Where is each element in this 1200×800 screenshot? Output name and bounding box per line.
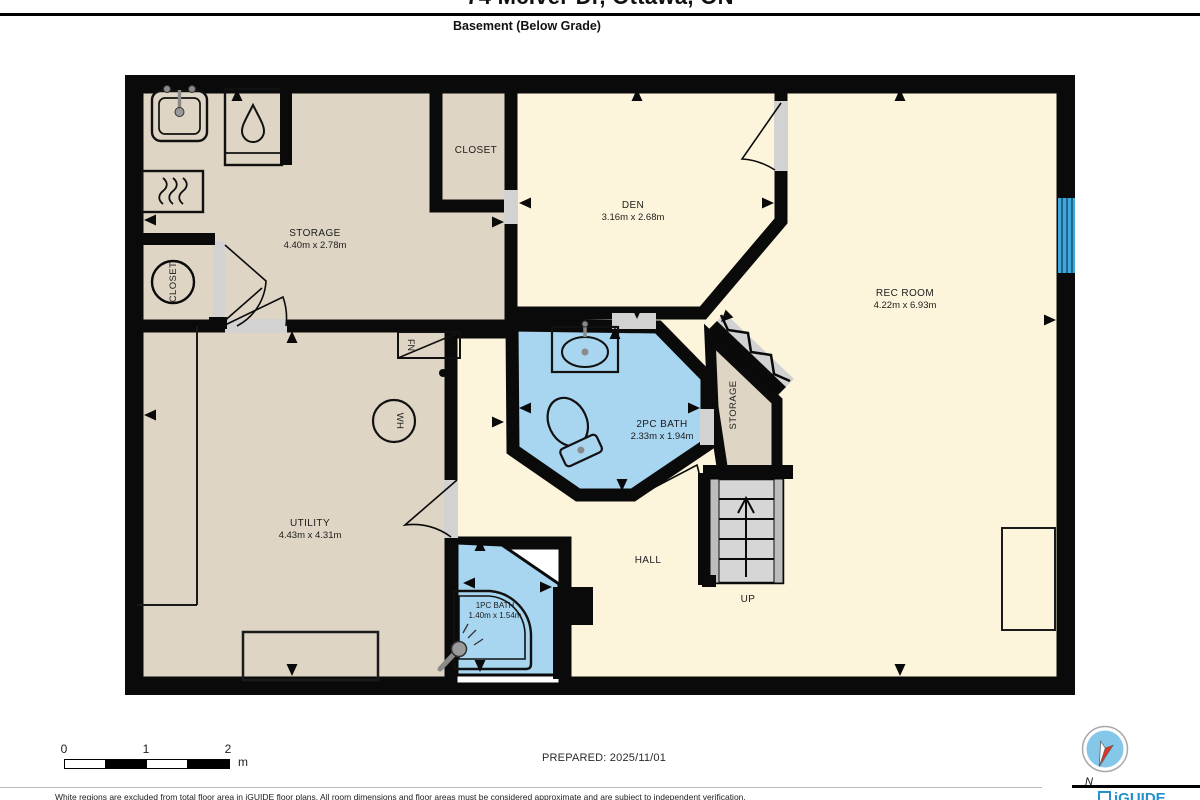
brand-logo-text: iGUIDE [1114,790,1166,800]
rec-room-dims: 4.22m x 6.93m [874,300,937,311]
floorplan-page: 74 McIver Dr, Ottawa, ON Basement (Below… [0,0,1200,800]
furnace-label: FN [406,339,416,351]
page-title: 74 McIver Dr, Ottawa, ON [0,0,1200,10]
scale-seg [105,759,148,769]
brand-logo-icon [1098,791,1111,800]
storage-name: STORAGE [289,228,341,239]
hall-name: HALL [635,555,662,566]
floor-drain-icon [439,369,447,377]
bath-2pc-dims: 2.33m x 1.94m [631,431,694,442]
prepared-date: PREPARED: 2025/11/01 [542,752,666,764]
brand-divider [1072,785,1200,788]
rec-room-name: REC ROOM [876,288,934,299]
scale-tick-2: 2 [218,742,238,756]
water-heater-label: WH [394,413,405,430]
bath-1pc-name: 1PC BATH [476,601,515,610]
wall-stub [280,75,292,165]
brand-logo: iGUIDE [1098,790,1166,800]
floor-plan: CLOSET FN [125,75,1075,695]
room-bath-2pc [512,325,707,495]
scale-unit: m [238,755,248,769]
title-divider [0,13,1200,16]
bath-2pc-name: 2PC BATH [636,419,687,430]
scale-seg [187,759,230,769]
staircase [698,465,793,587]
window-icon [1058,198,1075,273]
scale-seg [146,759,189,769]
room-utility [137,326,451,683]
scale-tick-1: 1 [136,742,156,756]
storage-under-name: STORAGE [728,380,739,429]
storage-dims: 4.40m x 2.78m [284,240,347,251]
laundry-sink-icon [152,86,207,142]
closet-small-name: CLOSET [168,262,179,302]
bath-1pc-dims: 1.40m x 1.54m [469,611,522,620]
utility-name: UTILITY [290,518,330,529]
den-dims: 3.16m x 2.68m [602,212,665,223]
floor-label: Basement (Below Grade) [453,19,601,33]
den-name: DEN [622,200,644,211]
scale-tick-0: 0 [54,742,74,756]
footer-divider [0,787,1042,788]
scale-seg [64,759,107,769]
compass-icon [1072,722,1142,782]
up-label: UP [741,594,756,605]
closet-top-name: CLOSET [455,145,497,156]
disclaimer-text: White regions are excluded from total fl… [55,792,1015,800]
utility-dims: 4.43m x 4.31m [279,530,342,541]
